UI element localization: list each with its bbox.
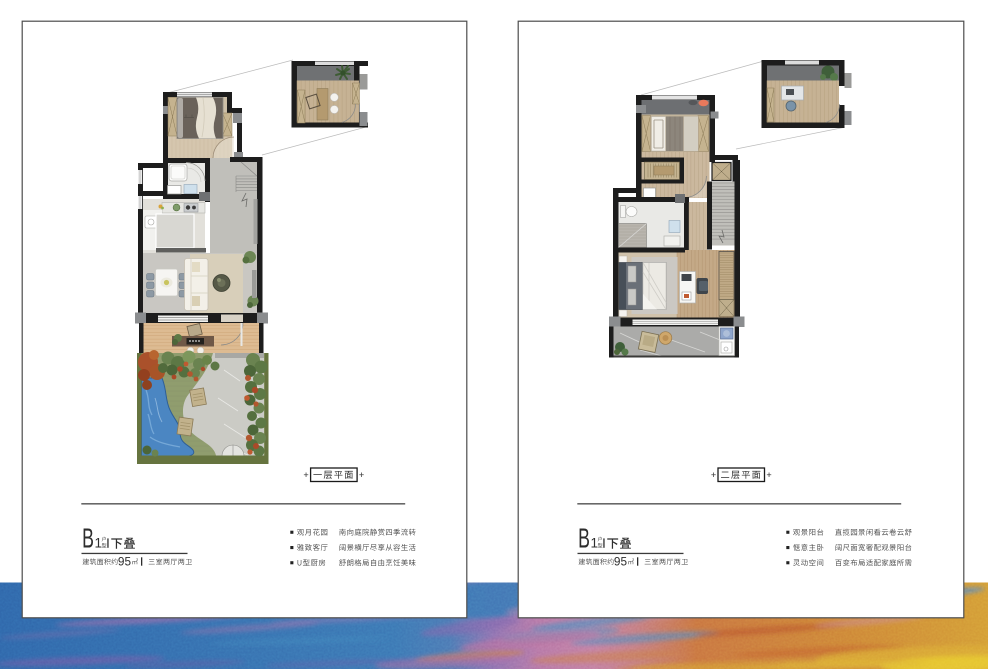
svg-text:95: 95 — [614, 554, 628, 568]
svg-text:B: B — [578, 523, 590, 554]
svg-text:1: 1 — [591, 536, 599, 551]
svg-text:B: B — [82, 523, 94, 554]
svg-text:1: 1 — [95, 536, 103, 551]
svg-text:95: 95 — [118, 554, 132, 568]
